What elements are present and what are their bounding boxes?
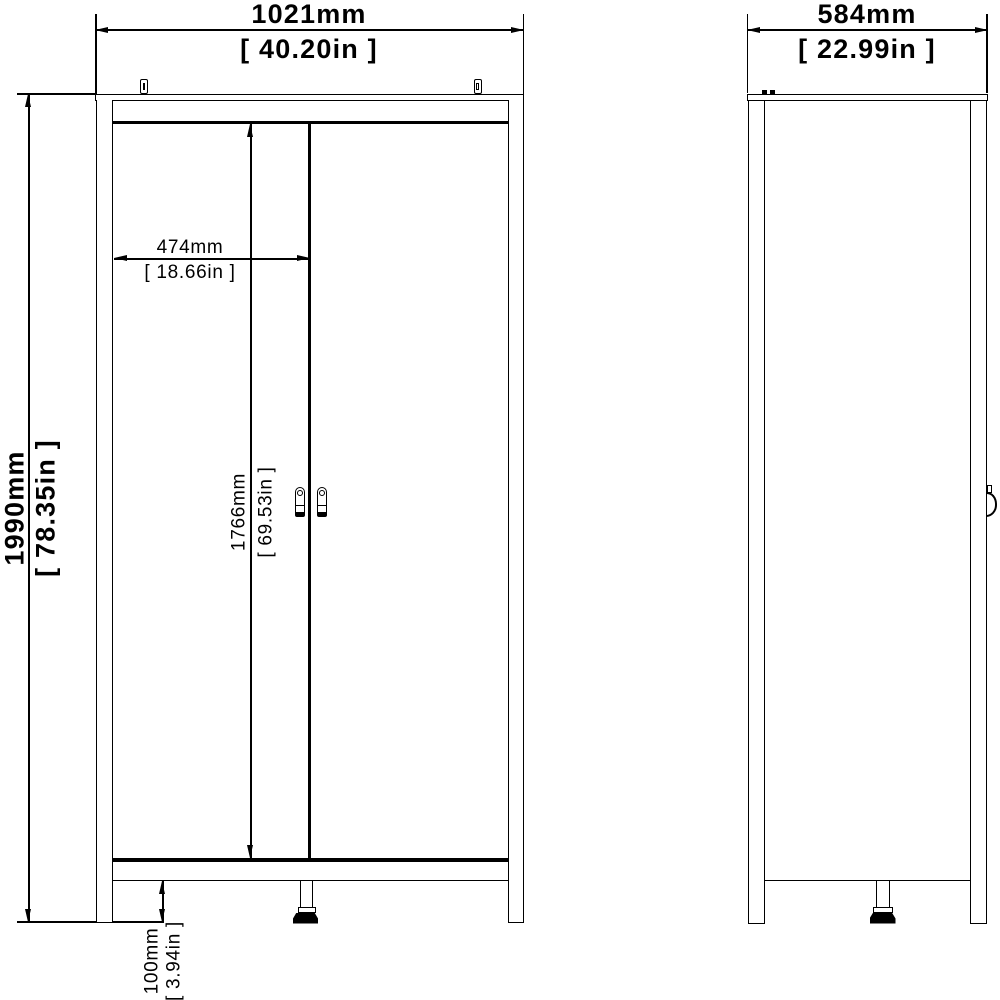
handle-pin	[297, 490, 303, 496]
width-mm-label: 1021mm	[251, 1, 366, 28]
side-panel-right	[508, 100, 525, 923]
arrowhead-down-icon	[159, 909, 165, 922]
dimension-line	[114, 258, 310, 260]
door-bottom-edge	[113, 858, 508, 862]
height-mm-label: 1990mm	[2, 450, 29, 565]
door-gap	[308, 124, 311, 859]
technical-drawing: 1021mm [ 40.20in ] 1990mm [ 78.35in ]	[0, 0, 1000, 1000]
width-in-label: [ 40.20in ]	[240, 36, 378, 63]
side-panel-back-edge	[970, 101, 987, 925]
height-in-label: [ 78.35in ]	[33, 439, 60, 577]
top-panel	[747, 94, 988, 102]
arrowhead-left-icon	[95, 27, 108, 33]
arrowhead-left-icon	[747, 27, 760, 33]
handle-pin	[319, 490, 325, 496]
handle-profile-icon	[986, 492, 997, 517]
arrowhead-up-icon	[159, 881, 165, 894]
handle-tip	[318, 512, 326, 517]
dimension-line	[95, 29, 524, 31]
arrowhead-up-icon	[247, 124, 253, 137]
door-handle-right	[317, 487, 327, 517]
center-leg-collar	[298, 907, 316, 913]
depth-in-label: [ 22.99in ]	[798, 36, 936, 63]
side-panel-front-edge	[748, 101, 765, 925]
door-height-mm-label: 1766mm	[230, 473, 249, 551]
dimension-line	[250, 124, 252, 859]
wall-bracket-edge-mark	[770, 90, 775, 94]
arrowhead-down-icon	[25, 909, 31, 922]
door-handle-left	[295, 487, 305, 517]
handle-tip	[296, 512, 304, 517]
dimension-line	[747, 29, 988, 31]
center-leg-foot	[870, 913, 896, 924]
arrowhead-down-icon	[247, 845, 253, 858]
leg-height-in-label: [ 3.94in ]	[165, 921, 184, 1000]
arrowhead-right-icon	[511, 27, 524, 33]
wall-bracket-right	[474, 79, 482, 94]
extension-line-bottom	[17, 921, 164, 923]
side-panel-left	[96, 100, 113, 923]
bracket-slot	[476, 83, 479, 90]
door-height-in-label: [ 69.53in ]	[257, 466, 276, 557]
center-leg-stem	[300, 881, 313, 908]
base-rail-bottom	[765, 880, 970, 882]
arrowhead-right-icon	[975, 27, 988, 33]
arrowhead-right-icon	[297, 255, 310, 261]
door-width-mm-label: 474mm	[157, 238, 224, 257]
wall-bracket-edge-mark	[762, 90, 767, 94]
bracket-slot	[143, 83, 146, 90]
center-leg-stem	[876, 881, 890, 908]
leg-height-mm-label: 100mm	[142, 928, 161, 995]
door-width-in-label: [ 18.66in ]	[144, 263, 235, 282]
depth-mm-label: 584mm	[817, 1, 916, 28]
center-leg-foot	[293, 913, 318, 924]
wall-bracket-left	[140, 79, 148, 94]
arrowhead-up-icon	[25, 94, 31, 107]
center-leg-collar	[873, 907, 893, 913]
arrowhead-left-icon	[114, 255, 127, 261]
top-panel	[95, 94, 524, 101]
